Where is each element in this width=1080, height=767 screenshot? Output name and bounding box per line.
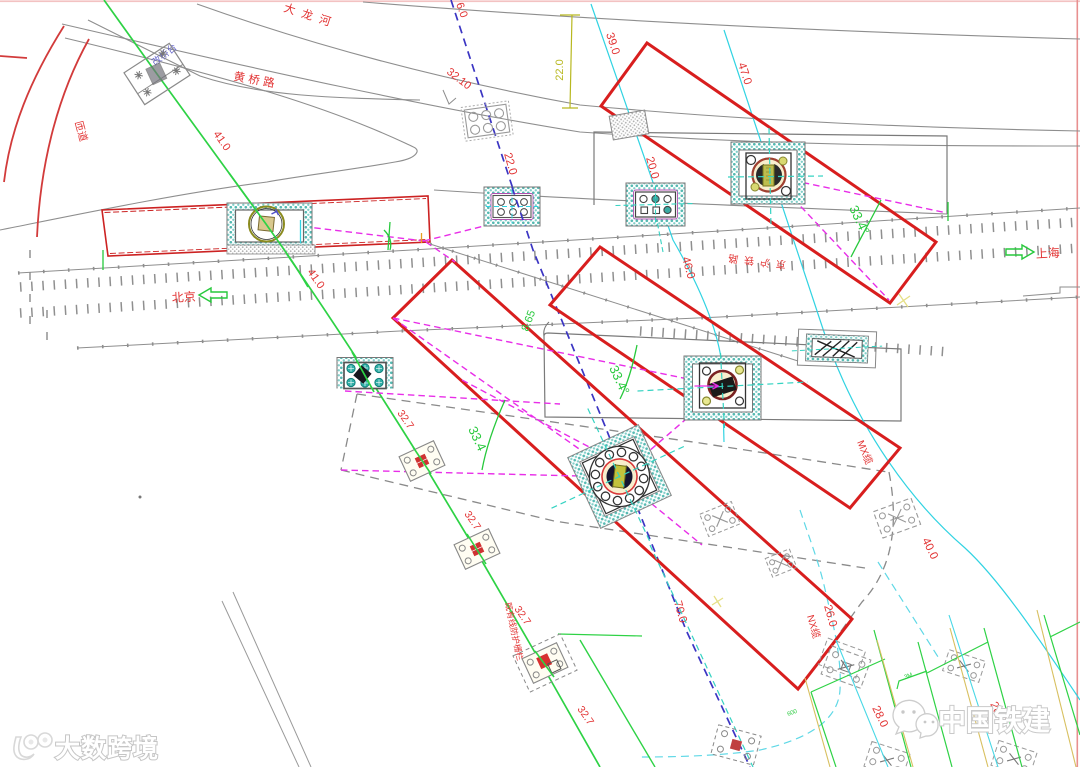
svg-text:大数跨境: 大数跨境 [55, 734, 159, 763]
svg-text:北京: 北京 [171, 290, 196, 305]
svg-text:上海: 上海 [1035, 245, 1060, 261]
svg-text:22.0: 22.0 [554, 59, 566, 80]
svg-text:中国铁建: 中国铁建 [938, 705, 1050, 736]
